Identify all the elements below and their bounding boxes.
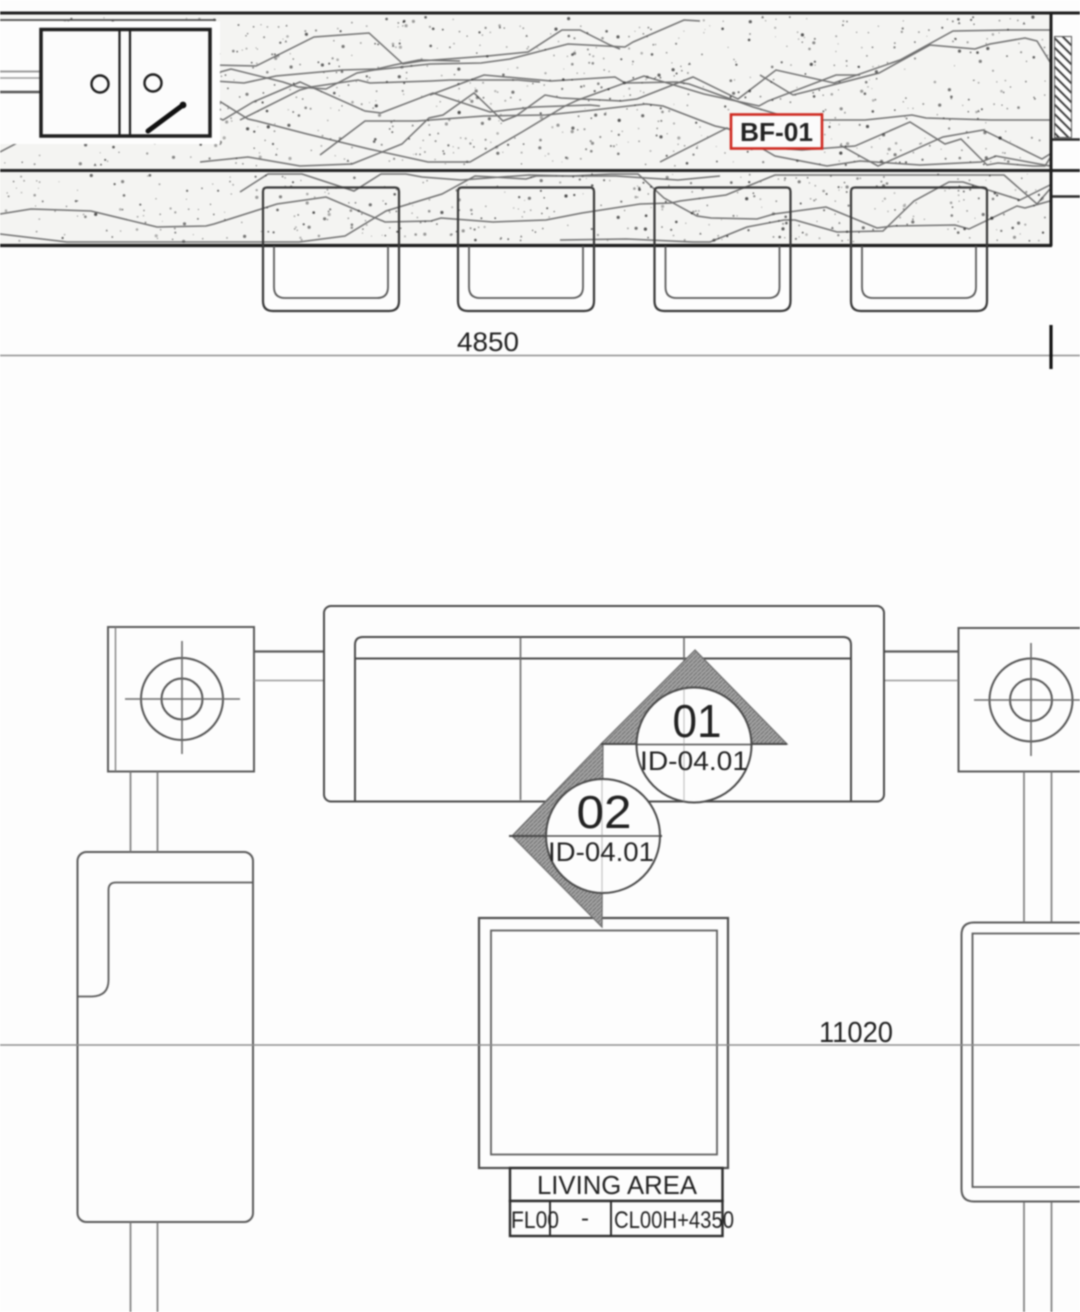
svg-text:-: - (581, 1205, 589, 1232)
svg-text:ID-04.01: ID-04.01 (548, 837, 654, 867)
svg-text:BF-01: BF-01 (740, 117, 813, 147)
svg-text:ID-04.01: ID-04.01 (640, 746, 748, 776)
svg-text:FL00: FL00 (511, 1207, 559, 1234)
svg-text:4850: 4850 (457, 327, 519, 357)
svg-text:CL00H+4350: CL00H+4350 (614, 1207, 734, 1234)
svg-text:02: 02 (577, 786, 632, 838)
svg-text:11020: 11020 (819, 1017, 893, 1049)
svg-text:01: 01 (673, 695, 722, 747)
svg-text:LIVING AREA: LIVING AREA (537, 1170, 698, 1200)
